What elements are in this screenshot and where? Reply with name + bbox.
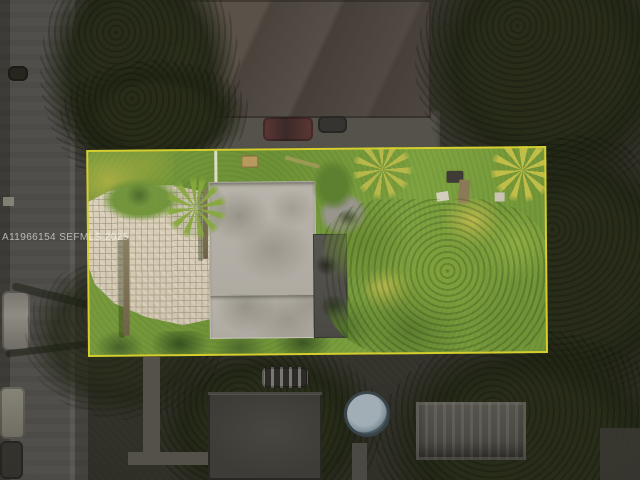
aerial-photo: A11966154 SEFMLS 2025 [0,0,640,480]
walkway-vertical [143,357,160,455]
ruin-structure [416,402,526,460]
parked-car-top [8,66,28,81]
driveway-car-dark [318,116,347,133]
parked-car-white [0,387,25,439]
round-pool [344,391,390,437]
driveway-car-red [263,117,313,141]
highlighted-parcel [86,146,548,357]
pool-walkway [352,443,367,480]
corner-house-bottom-right [600,428,640,480]
mls-watermark: A11966154 SEFMLS 2025 [2,232,129,243]
walkway-horizontal [128,452,212,465]
parcel-boundary-line [86,146,548,357]
street-sign [3,197,14,206]
utility-trailer [262,367,308,388]
neighbor-roof-bottom [208,392,322,480]
parked-car-dark [0,441,23,479]
